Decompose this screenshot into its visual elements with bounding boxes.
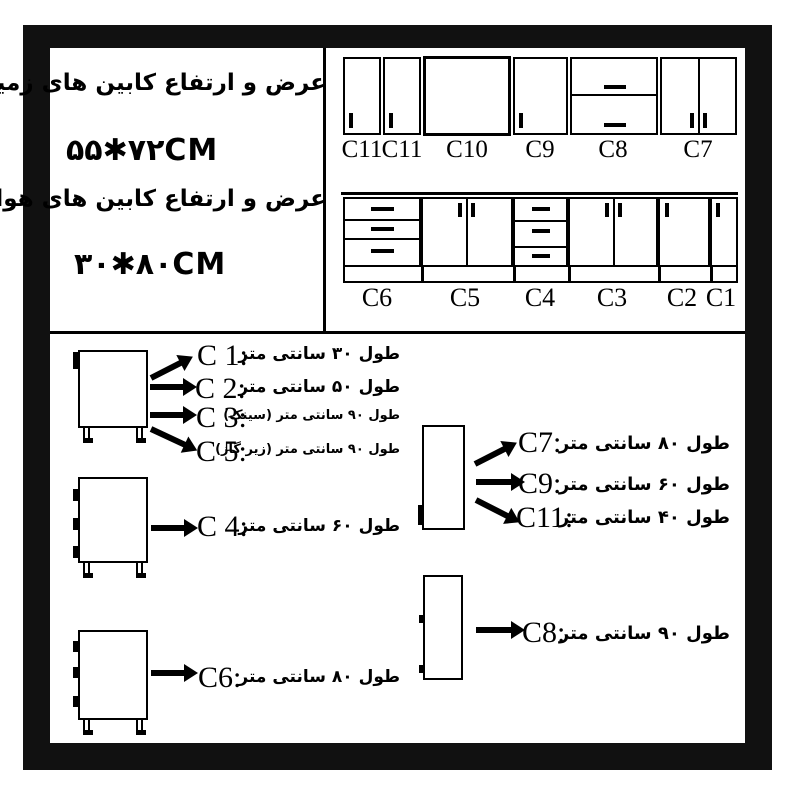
drawer-divider (515, 220, 566, 222)
door-handle (618, 203, 622, 217)
wall-row-label: C10 (432, 137, 502, 162)
base-unit-c4 (513, 197, 568, 267)
flap-divider (572, 94, 656, 96)
cabinet-spec-diagram: عرض و ارتفاع کابین های زمینی : ۵۵✱۷۲CM ع… (0, 0, 800, 800)
legend-desc-c9: طول ۶۰ سانتی متر (565, 475, 730, 496)
base-unit-c6 (343, 197, 421, 267)
arrow-to-c2 (150, 384, 184, 390)
base-row-label: C6 (342, 285, 412, 311)
door-handle (458, 203, 462, 217)
base-unit-c2 (658, 197, 710, 267)
wall-unit-c8 (570, 57, 658, 135)
cabinet-leg (83, 720, 90, 732)
legend-drawing-wall-tall (422, 425, 465, 530)
kick-divider (568, 267, 571, 281)
wall-row-label: C7 (663, 137, 733, 162)
door-handle (703, 113, 707, 128)
arrow-to-c3 (150, 412, 184, 418)
drawer-handle (73, 696, 78, 707)
info-wall-size: ۳۰✱۸۰CM (74, 248, 226, 283)
wall-unit-c11-left (343, 57, 381, 135)
drawer-handle (371, 249, 394, 253)
drawer-handle (532, 229, 550, 233)
drawer-divider (345, 219, 419, 221)
wall-row-label: C9 (505, 137, 575, 162)
cabinet-leg (136, 720, 143, 732)
flap-handle (604, 85, 626, 89)
cabinet-leg (83, 563, 90, 575)
info-ground-size: ۵۵✱۷۲CM (66, 134, 218, 169)
door-handle (471, 203, 475, 217)
door-divider (613, 199, 615, 265)
countertop (341, 192, 738, 195)
legend-desc-c11: طول ۴۰ سانتی متر (565, 508, 730, 529)
drawer-handle (73, 641, 78, 652)
door-handle (389, 113, 393, 128)
wall-unit-c9 (513, 57, 568, 135)
drawer-handle (371, 227, 394, 231)
legend-code-c7: C7: (518, 428, 561, 458)
wall-unit-c11-right (383, 57, 421, 135)
base-row-label: C3 (577, 285, 647, 311)
legend-desc-c1: طول ۳۰ سانتی متر (230, 345, 400, 365)
door-handle (605, 203, 609, 217)
kick-divider (421, 267, 424, 281)
legend-desc-c3: طول ۹۰ سانتی متر (سینک) (228, 409, 400, 424)
base-unit-c1 (710, 197, 738, 267)
arrow-to-c8 (476, 627, 512, 633)
section-divider-horizontal (50, 331, 745, 334)
info-ground-label: عرض و ارتفاع کابین های زمینی : (0, 70, 326, 96)
drawer-handle (532, 254, 550, 258)
legend-code-c9: C9: (518, 469, 561, 499)
base-unit-c5 (421, 197, 513, 267)
door-handle (418, 505, 423, 525)
kick-divider (658, 267, 661, 281)
arrow-to-c6 (151, 670, 185, 676)
base-unit-c3 (568, 197, 658, 267)
door-handle (665, 203, 669, 217)
legend-drawing-wall-c8 (423, 575, 463, 680)
door-handle (716, 203, 720, 217)
wall-unit-c10 (423, 56, 511, 136)
legend-drawing-base-c4 (78, 477, 148, 563)
drawer-handle (73, 546, 78, 558)
cabinet-leg (83, 428, 90, 440)
flap-handle (419, 615, 424, 623)
flap-handle (604, 123, 626, 127)
legend-desc-c5: طول ۹۰ سانتی متر (زیر گاز) (228, 443, 400, 458)
legend-desc-c6: طول ۸۰ سانتی متر (232, 668, 400, 688)
legend-desc-c2: طول ۵۰ سانتی متر (230, 378, 400, 398)
legend-drawing-base-door (78, 350, 148, 428)
base-row-label: C5 (430, 285, 500, 311)
wall-unit-c7 (660, 57, 737, 135)
kick-divider (710, 267, 713, 281)
arrow-to-c9 (476, 479, 512, 485)
door-handle (73, 352, 78, 369)
wall-row-label: C8 (578, 137, 648, 162)
flap-handle (419, 665, 424, 673)
door-handle (690, 113, 694, 128)
door-handle (349, 113, 353, 128)
drawer-divider (345, 238, 419, 240)
drawer-handle (371, 207, 394, 211)
wall-row-label: C11 (367, 137, 437, 162)
legend-desc-c4: طول ۶۰ سانتی متر (230, 517, 400, 537)
arrow-to-c4 (151, 525, 185, 531)
drawer-handle (73, 489, 78, 501)
door-divider (698, 59, 700, 133)
cabinet-leg (136, 428, 143, 440)
legend-desc-c7: طول ۸۰ سانتی متر (565, 434, 730, 455)
info-wall-label: عرض و ارتفاع کابین های هوایی : (0, 186, 326, 212)
base-row-label: C1 (686, 285, 756, 311)
drawer-divider (515, 246, 566, 248)
base-row-label: C4 (505, 285, 575, 311)
legend-desc-c8: طول ۹۰ سانتی متر (563, 624, 730, 645)
door-handle (519, 113, 523, 128)
cabinet-leg (136, 563, 143, 575)
door-divider (466, 199, 468, 265)
drawer-handle (532, 207, 550, 211)
kick-divider (513, 267, 516, 281)
drawer-handle (73, 667, 78, 678)
base-kick-strip (343, 265, 738, 283)
legend-drawing-base-c6 (78, 630, 148, 720)
drawer-handle (73, 518, 78, 530)
